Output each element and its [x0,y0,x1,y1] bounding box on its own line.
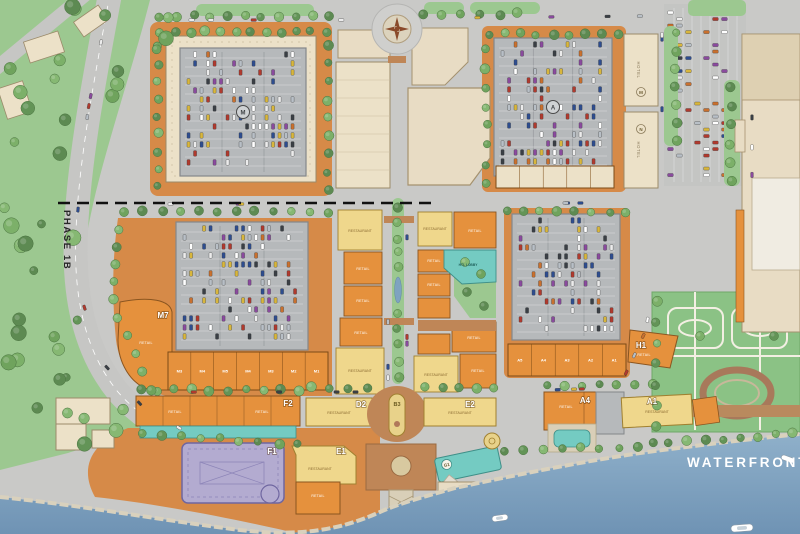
retail-label: RETAIL [467,336,480,340]
hotel-badge-lower: N [639,127,642,132]
retail-label: RETAIL [427,259,440,263]
svg-text:A4: A4 [541,357,547,362]
retail-label: RETAIL [311,494,324,498]
paseo [418,320,496,331]
waterfront-street-label: WATERFRONT STREET [687,455,800,470]
restaurant-label: RESTAURANT [348,229,372,233]
restaurant-label: RESTAURANT [423,227,447,231]
label-h1: H1 [636,341,647,350]
phase-label: PHASE 1B [61,210,72,270]
hotel-label-lower: HOTEL [636,142,641,159]
svg-text:A2: A2 [588,357,594,362]
label-a1: A1 [647,397,658,406]
round-pavilion [484,433,500,449]
restaurant-label: RESTAURANT [308,467,332,471]
restaurant-label: RESTAURANT [448,411,472,415]
site-plan-stage: M3M4M5M4M3M2M1A5A4A3A2A1 PHASE 1B M7 F2 … [0,0,800,534]
convention-center [735,34,800,332]
label-f1: F1 [267,447,277,456]
restaurant-label: RESTAURANT [645,410,669,414]
hotel-badge-upper: M [639,90,643,95]
retail-label: RETAIL [356,267,369,271]
retail-label: RETAIL [559,405,572,409]
svg-text:M3: M3 [177,368,183,373]
building-waterfront-retail [296,482,340,514]
garage-badge-west: M [241,111,246,117]
svg-text:A1: A1 [612,357,618,362]
svg-text:M1: M1 [314,368,320,373]
retail-label: RETAIL [427,283,440,287]
restaurant-label: RESTAURANT [424,373,448,377]
label-m7: M7 [157,311,169,320]
retail-label: RETAIL [168,410,181,414]
restaurant-label: RESTAURANT [327,411,351,415]
retail-label: RETAIL [471,369,484,373]
retail-label: RETAIL [139,341,152,345]
site-plan-map: M3M4M5M4M3M2M1A5A4A3A2A1 PHASE 1B M7 F2 … [0,0,800,534]
retail-label: RETAIL [356,299,369,303]
label-a4: A4 [580,396,591,405]
svg-text:M4: M4 [245,368,251,373]
block-top-center [336,28,490,188]
svg-text:M2: M2 [291,368,297,373]
svg-text:A5: A5 [517,357,523,362]
label-b3: B3 [393,402,400,408]
svg-text:M3: M3 [268,368,274,373]
label-e1: E1 [336,447,346,456]
label-d2: D2 [356,400,367,409]
svg-text:A3: A3 [564,357,570,362]
restaurant-label: RESTAURANT [348,369,372,373]
svg-text:M5: M5 [222,368,228,373]
hotel-label-upper: HOTEL [636,62,641,79]
retail-label: RETAIL [354,331,367,335]
hotel-lobby-label: HTL LOBBY [459,263,479,267]
retail-label: RETAIL [637,353,650,357]
pool [554,430,590,447]
building-b3 [389,394,405,436]
retail-label: RETAIL [468,229,481,233]
svg-text:M4: M4 [200,368,206,373]
retail-label: RETAIL [255,410,268,414]
label-f2: F2 [283,399,293,408]
garage-badge-east: A [551,106,556,112]
boat [731,524,753,533]
label-e2: E2 [465,400,475,409]
